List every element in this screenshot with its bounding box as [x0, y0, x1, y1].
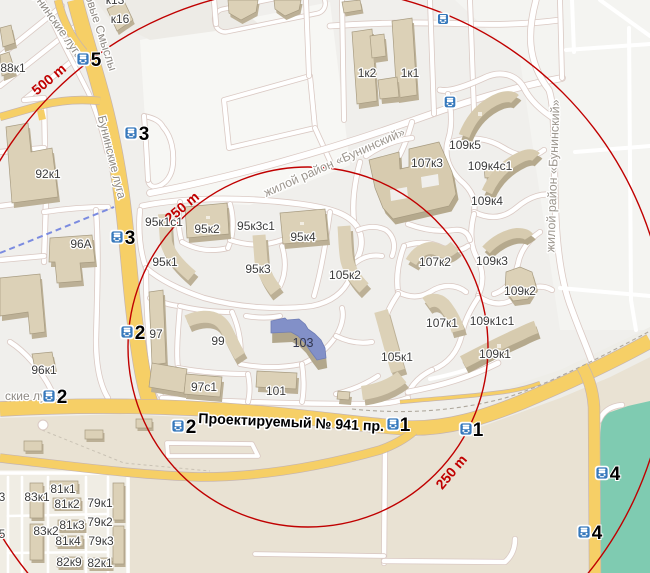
svg-text:82к9: 82к9 — [56, 555, 82, 569]
svg-text:3: 3 — [125, 228, 136, 249]
svg-text:5: 5 — [0, 527, 6, 541]
svg-text:81к1: 81к1 — [50, 482, 76, 496]
svg-text:81к3: 81к3 — [59, 518, 85, 532]
svg-text:96А: 96А — [70, 237, 91, 251]
svg-text:96к1: 96к1 — [31, 363, 57, 377]
svg-text:2: 2 — [135, 323, 146, 344]
svg-text:109к5: 109к5 — [449, 138, 481, 152]
svg-text:1к2: 1к2 — [358, 66, 377, 80]
svg-text:3: 3 — [0, 490, 6, 504]
svg-text:79к3: 79к3 — [88, 534, 114, 548]
svg-text:95к1с1: 95к1с1 — [145, 215, 183, 229]
svg-text:1к1: 1к1 — [401, 66, 420, 80]
svg-text:105к2: 105к2 — [329, 268, 361, 282]
svg-text:103: 103 — [293, 336, 314, 350]
svg-text:95к1: 95к1 — [152, 255, 178, 269]
svg-text:79к2: 79к2 — [87, 515, 113, 529]
svg-text:109к2: 109к2 — [504, 284, 536, 298]
svg-text:99: 99 — [211, 334, 225, 348]
svg-text:2: 2 — [186, 417, 197, 438]
svg-text:95к3: 95к3 — [245, 262, 271, 276]
svg-text:1: 1 — [473, 420, 484, 441]
svg-text:97с1: 97с1 — [191, 380, 217, 394]
svg-text:4: 4 — [610, 464, 621, 485]
svg-text:81к4: 81к4 — [55, 534, 81, 548]
svg-text:95к2: 95к2 — [194, 222, 220, 236]
svg-text:к16: к16 — [111, 12, 130, 26]
svg-text:97: 97 — [149, 327, 163, 341]
svg-text:5: 5 — [91, 50, 102, 71]
svg-text:109к4с1: 109к4с1 — [468, 159, 513, 173]
svg-text:101: 101 — [266, 384, 286, 398]
svg-text:107к3: 107к3 — [411, 156, 443, 170]
svg-text:4: 4 — [592, 523, 603, 544]
svg-text:109к1: 109к1 — [479, 347, 511, 361]
svg-text:к13: к13 — [106, 0, 125, 7]
svg-text:109к4: 109к4 — [471, 194, 503, 208]
svg-text:81к2: 81к2 — [54, 497, 80, 511]
svg-text:1: 1 — [400, 415, 411, 436]
svg-text:82к1: 82к1 — [87, 556, 113, 570]
svg-text:79к1: 79к1 — [87, 496, 113, 510]
svg-text:92к1: 92к1 — [35, 167, 61, 181]
svg-text:88к1: 88к1 — [0, 61, 26, 75]
svg-text:95к3с1: 95к3с1 — [237, 219, 275, 233]
svg-text:95к4: 95к4 — [290, 230, 316, 244]
svg-text:107к1: 107к1 — [426, 316, 458, 330]
svg-text:109к3: 109к3 — [476, 254, 508, 268]
svg-text:109к1с1: 109к1с1 — [470, 314, 515, 328]
svg-text:83к1: 83к1 — [24, 490, 50, 504]
svg-text:105к1: 105к1 — [381, 350, 413, 364]
svg-text:3: 3 — [139, 124, 150, 145]
svg-text:107к2: 107к2 — [419, 255, 451, 269]
svg-text:2: 2 — [57, 387, 68, 408]
